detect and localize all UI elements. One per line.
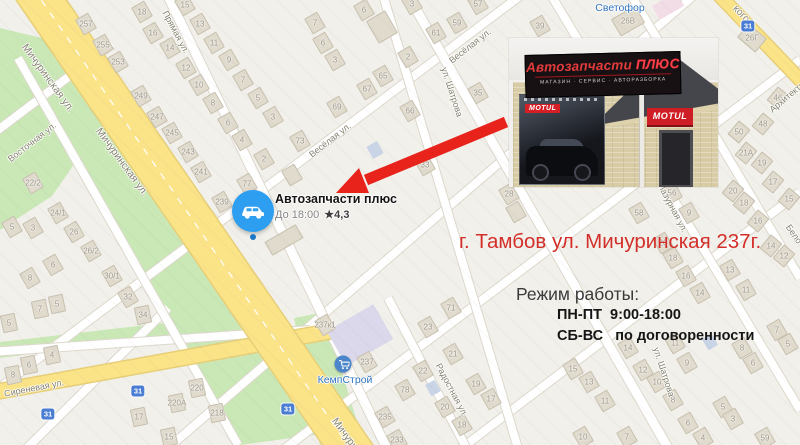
building-number: 16: [682, 272, 691, 281]
building-number: 3: [31, 224, 35, 233]
pin-hours: До 18:00: [275, 209, 319, 221]
building-number: 26В: [621, 17, 635, 26]
building-number: 3: [333, 56, 337, 65]
building-number: 50: [735, 128, 744, 137]
building-number: 257: [79, 20, 92, 29]
pin-title[interactable]: Автозапчасти плюс: [275, 192, 397, 206]
building-number: 4: [50, 351, 54, 360]
store-poi-icon[interactable]: [335, 356, 352, 373]
building-number: 5: [786, 340, 790, 349]
poi-label[interactable]: КемпСтрой: [318, 374, 373, 386]
pin-rating: ★4,3: [324, 209, 349, 221]
building-number: 19: [758, 159, 767, 168]
building-number: 7: [625, 433, 629, 442]
building-number: 9: [227, 56, 231, 65]
poi-label[interactable]: Светофор: [595, 2, 644, 14]
building-number: 17: [135, 413, 144, 422]
street-label: Восточная ул.: [6, 120, 58, 164]
building-number: 13: [585, 378, 594, 387]
building-number: 20: [441, 403, 450, 412]
building-number: 247: [150, 113, 163, 122]
photo-downpipe: [639, 95, 644, 187]
building-number: 9: [685, 359, 689, 368]
building-number: 17: [487, 395, 496, 404]
building-number: 14: [166, 44, 175, 53]
building-number: 21: [449, 350, 458, 359]
photo-window: [659, 130, 693, 187]
building-number: 35: [474, 89, 483, 98]
building-number: 78: [401, 386, 410, 395]
building-number: 11: [742, 286, 750, 295]
building-number: 233: [390, 436, 403, 445]
building-number: 59: [761, 434, 770, 443]
store-sign: АвтозапчастиПЛЮС МАГАЗИН · СЕРВИС · АВТО…: [524, 51, 681, 98]
building-number: 12: [780, 252, 789, 261]
schedule-weekend: СБ-ВС по договоренности: [557, 328, 754, 344]
building-number: 48: [759, 120, 768, 129]
building-number: 20: [729, 187, 738, 196]
building-number: 11: [210, 39, 218, 48]
building-number: 237: [360, 358, 373, 367]
banner-icons-row: [524, 98, 600, 101]
building-number: 34: [139, 311, 148, 320]
building-number: 10: [579, 433, 588, 442]
building-number: 235: [378, 413, 391, 422]
building-number: 220: [190, 384, 203, 393]
schedule-weekdays: ПН-ПТ 9:00-18:00: [557, 307, 681, 323]
route-badge: 31: [131, 386, 144, 397]
building-number: 26/2: [83, 247, 99, 256]
route-badge: 31: [281, 404, 294, 415]
building-number: 9: [687, 209, 691, 218]
building-number: 18: [740, 199, 749, 208]
building-number: 21А: [739, 149, 753, 158]
street-label: Бело: [784, 223, 800, 246]
building-number: 10: [195, 81, 204, 90]
building-number: 245: [165, 129, 178, 138]
building-number: 7: [241, 76, 245, 85]
building-number: 14: [624, 344, 633, 353]
building-number: 39: [536, 22, 545, 31]
building-number: 237к1: [314, 321, 335, 330]
building-number: 241: [194, 168, 207, 177]
route-badge: 31: [41, 409, 54, 420]
building-number: 71: [447, 304, 456, 313]
building-number: 5: [721, 403, 725, 412]
building-number: 7: [38, 305, 42, 314]
building-number: 15: [569, 365, 578, 374]
building-number: 15: [785, 195, 794, 204]
street-label: Весёлая ул.: [447, 27, 493, 66]
car-photo-wheel: [532, 164, 549, 181]
building-number: 59: [453, 19, 462, 28]
pin-subtitle: До 18:00★4,3: [275, 208, 397, 221]
building-number: 5: [256, 94, 260, 103]
building-number: 66: [406, 107, 415, 116]
building-number: 32: [124, 293, 133, 302]
building-number: 24/1: [50, 209, 66, 218]
building-number: 28: [505, 190, 514, 199]
building-number: 26Г: [745, 34, 758, 43]
street-label: Мичуринская ул.: [19, 42, 77, 115]
building-number: 218: [210, 409, 223, 418]
building-number: 243: [181, 148, 194, 157]
building-number: 2: [406, 53, 410, 62]
building-number: 13: [196, 20, 205, 29]
schedule-title: Режим работы:: [516, 284, 639, 305]
car-pin-icon[interactable]: [232, 190, 274, 232]
building-number: 6: [27, 361, 31, 370]
building-number: 18: [458, 421, 467, 430]
building-number: 12: [639, 366, 648, 375]
street-label: Радостная ул.: [434, 362, 471, 419]
car-icon: [240, 203, 266, 219]
motul-wall-sign: MOTUL: [647, 108, 693, 127]
building-number: 22: [419, 367, 428, 376]
building-number: 15: [165, 433, 174, 442]
address-annotation: г. Тамбов ул. Мичуринская 237г.: [459, 230, 761, 254]
building-number: 61: [432, 29, 441, 38]
building-number: 8: [11, 371, 15, 380]
building-number: 7: [313, 19, 317, 28]
building-number: 8: [671, 396, 675, 405]
building-number: 23: [424, 323, 433, 332]
street-label: Весёлая ул.: [307, 121, 353, 160]
building-number: 255: [96, 41, 109, 50]
building-number: 12: [182, 64, 191, 73]
building-number: 15: [181, 1, 190, 10]
building-number: 22/2: [25, 179, 41, 188]
building-number: 8: [211, 99, 215, 108]
building-number: 253: [111, 58, 124, 67]
motul-banner-logo: MOTUL: [525, 104, 560, 113]
building-number: 8: [28, 274, 32, 283]
building-number: 16: [754, 217, 763, 226]
building-number: 77: [243, 180, 252, 189]
building-number: 73: [296, 137, 305, 146]
store-sign-subtitle: МАГАЗИН · СЕРВИС · АВТОРАЗБОРКА: [535, 73, 671, 86]
building-number: 2: [262, 155, 266, 164]
street-label: ул. Шатрова: [439, 66, 464, 118]
building-number: 6: [226, 119, 230, 128]
building-number: 4: [701, 434, 705, 443]
motul-banner: MOTUL: [519, 94, 605, 185]
building-number: 5: [55, 300, 59, 309]
building-number: 7: [775, 326, 779, 335]
building-number: 220А: [168, 399, 187, 408]
building-number: 5: [7, 319, 11, 328]
building-number: 6: [362, 6, 366, 15]
building-number: 67: [363, 85, 372, 94]
building-number: 4: [240, 136, 244, 145]
car-photo-wheel: [574, 164, 591, 181]
building-number: 30/1: [104, 272, 120, 281]
building-number: 33: [421, 161, 430, 170]
street-label: ул. Шатрова: [651, 346, 676, 398]
building-number: 18: [669, 254, 678, 263]
building-number: 6: [751, 359, 755, 368]
building-number: 17: [769, 178, 778, 187]
store-photo: MOTUL АвтозапчастиПЛЮС МАГАЗИН · СЕРВИС …: [509, 38, 718, 187]
building-number: 58: [635, 209, 644, 218]
street-label: Архитектурная ул.: [767, 58, 800, 115]
building-number: 6: [51, 261, 55, 270]
building-number: 16: [149, 29, 158, 38]
street-label: Мичуринская ул.: [93, 126, 151, 199]
street-label: Сиреневая ул.: [3, 377, 64, 398]
route-badge: 31: [741, 21, 754, 32]
building-number: 6: [321, 39, 325, 48]
store-sign-title: АвтозапчастиПЛЮС: [526, 56, 680, 75]
building-number: 57: [474, 0, 483, 9]
building-number: 19: [472, 380, 481, 389]
pin-anchor-dot: [250, 234, 256, 240]
building-number: 3: [271, 113, 275, 122]
building-number: 69: [333, 103, 342, 112]
building-number: 13: [726, 266, 735, 275]
cart-icon: [337, 358, 349, 370]
building-number: 65: [379, 72, 388, 81]
building-number: 239: [215, 198, 228, 207]
building-number: 18: [138, 8, 147, 17]
building-number: 11: [601, 397, 609, 406]
pin-label[interactable]: Автозапчасти плюс До 18:00★4,3: [275, 192, 397, 221]
building-number: 3: [410, 0, 414, 9]
building-number: 8: [740, 344, 744, 353]
building-number: 3: [731, 415, 735, 424]
building-number: 5: [10, 223, 14, 232]
building-number: 6: [686, 419, 690, 428]
map[interactable]: 2572552532492472452432412397718161412108…: [0, 0, 800, 445]
building-number: 14: [767, 242, 776, 251]
building-number: 26: [70, 228, 79, 237]
building-number: 14: [696, 289, 705, 298]
building-number: 249: [134, 92, 147, 101]
